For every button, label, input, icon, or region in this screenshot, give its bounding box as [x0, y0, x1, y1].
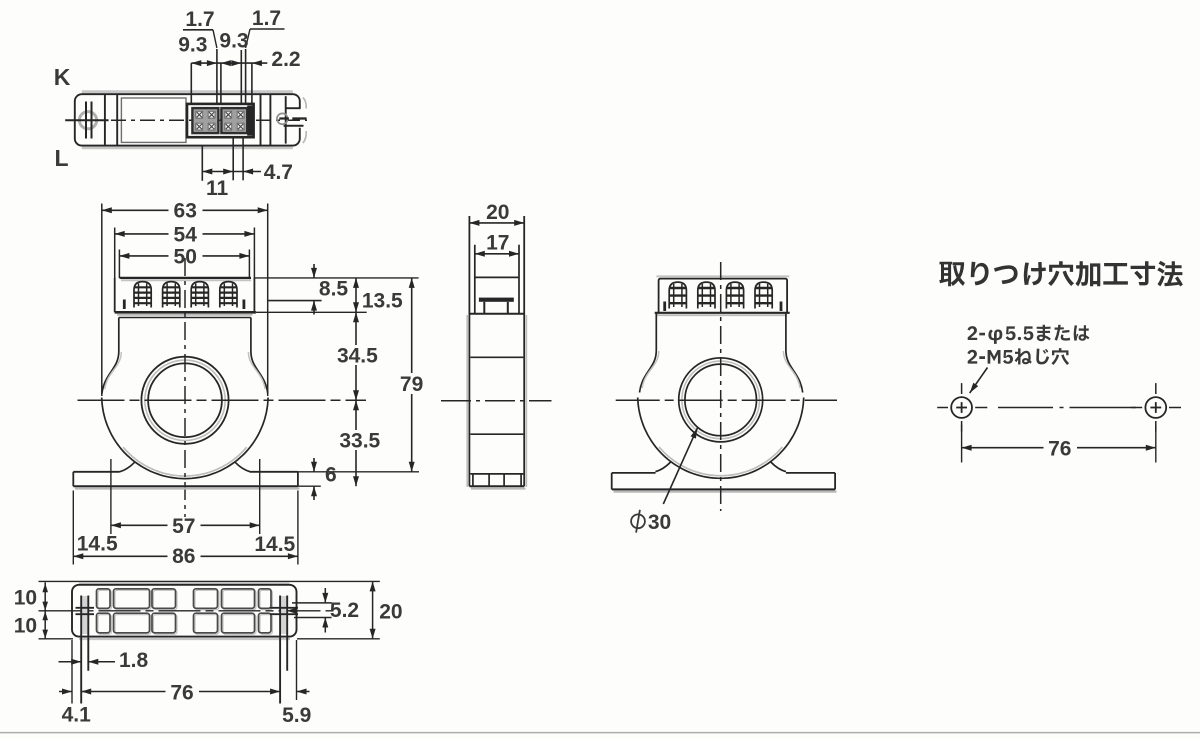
- svg-text:6: 6: [325, 463, 337, 486]
- svg-text:17: 17: [486, 232, 509, 255]
- svg-text:13.5: 13.5: [362, 289, 403, 312]
- svg-text:1.8: 1.8: [119, 649, 149, 672]
- svg-text:5.2: 5.2: [330, 599, 359, 622]
- svg-text:14.5: 14.5: [254, 533, 295, 556]
- svg-text:9.3: 9.3: [178, 34, 207, 57]
- svg-text:11: 11: [206, 177, 229, 200]
- svg-text:10: 10: [14, 615, 37, 638]
- svg-text:79: 79: [400, 373, 423, 396]
- svg-text:76: 76: [1048, 437, 1071, 460]
- svg-text:L: L: [54, 145, 68, 171]
- svg-text:86: 86: [172, 545, 195, 568]
- svg-text:8.5: 8.5: [319, 277, 349, 300]
- svg-text:5.9: 5.9: [282, 704, 311, 727]
- svg-text:20: 20: [379, 600, 402, 623]
- svg-text:4.1: 4.1: [62, 704, 92, 727]
- svg-text:54: 54: [174, 223, 198, 246]
- svg-text:9.3: 9.3: [219, 30, 248, 53]
- svg-text:34.5: 34.5: [337, 344, 378, 367]
- svg-text:4.7: 4.7: [264, 161, 293, 184]
- svg-text:10: 10: [14, 586, 37, 609]
- svg-text:30: 30: [648, 511, 671, 534]
- svg-text:63: 63: [174, 199, 197, 222]
- svg-text:20: 20: [486, 201, 509, 224]
- svg-text:57: 57: [172, 515, 195, 538]
- svg-text:K: K: [54, 64, 71, 90]
- svg-text:1.7: 1.7: [252, 7, 281, 30]
- svg-text:2.2: 2.2: [271, 48, 300, 71]
- svg-text:76: 76: [170, 681, 193, 704]
- svg-text:14.5: 14.5: [77, 532, 118, 555]
- svg-text:1.7: 1.7: [185, 8, 214, 31]
- svg-text:33.5: 33.5: [339, 429, 380, 452]
